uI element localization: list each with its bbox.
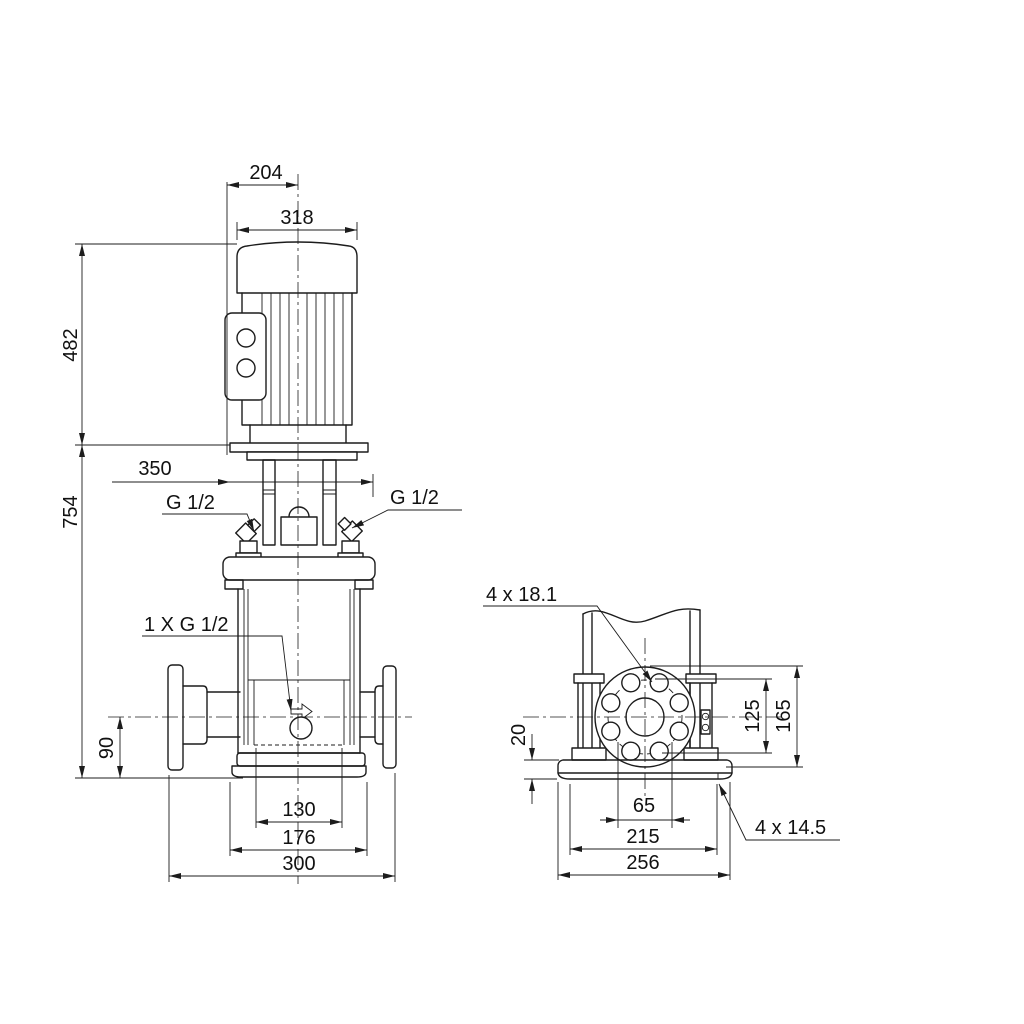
lantern-leg-right [323, 460, 336, 545]
front-view [108, 174, 412, 884]
leader-g12-right [352, 510, 462, 528]
dimension-labels: 204 318 482 754 350 G 1/2 G 1/2 1 X G 1/… [60, 162, 826, 875]
flange-bolt-left [240, 541, 257, 553]
pump-body [168, 557, 396, 777]
pump-dimension-drawing: 204 318 482 754 350 G 1/2 G 1/2 1 X G 1/… [0, 0, 1024, 1024]
motor-fins [262, 293, 343, 425]
dim-165: 165 [773, 699, 795, 732]
dim-204: 204 [249, 162, 282, 184]
fan-cover [237, 242, 357, 293]
label-g12-right: G 1/2 [390, 487, 439, 509]
dim-130: 130 [282, 799, 315, 821]
label-base-holes: 4 x 14.5 [755, 817, 826, 839]
flange-bolt-right [342, 541, 359, 553]
flange-shoulder-left [225, 580, 243, 589]
terminal-box [225, 313, 266, 400]
extension-lines [75, 182, 803, 882]
vent-plug-right [336, 515, 362, 541]
flange-shoulder-right [355, 580, 373, 589]
dim-20: 20 [508, 724, 530, 746]
shaft-dome [289, 507, 309, 517]
cable-gland-bottom [237, 359, 255, 377]
label-g12-left: G 1/2 [166, 492, 215, 514]
dim-176: 176 [282, 827, 315, 849]
dim-125: 125 [742, 699, 764, 732]
dim-65: 65 [633, 795, 655, 817]
dim-754: 754 [60, 495, 82, 528]
pump-top-flange [223, 557, 375, 580]
dim-350: 350 [138, 458, 171, 480]
dim-482: 482 [60, 328, 82, 361]
motor-flange-plate2 [247, 452, 357, 460]
pump-base-front [232, 753, 366, 777]
vent-plug-left [236, 517, 263, 544]
drain-plug [290, 717, 312, 739]
dim-300: 300 [282, 853, 315, 875]
dim-318: 318 [280, 207, 313, 229]
lantern [236, 460, 363, 558]
dim-215: 215 [626, 826, 659, 848]
leader-drain [142, 636, 291, 711]
coupling [281, 517, 317, 545]
lantern-leg-left [263, 460, 275, 545]
motor [225, 242, 368, 460]
dim-256: 256 [626, 852, 659, 874]
cable-gland-top [237, 329, 255, 347]
dim-90: 90 [96, 737, 118, 759]
coupling-guard-joints [263, 490, 336, 494]
drawing-canvas: 204 318 482 754 350 G 1/2 G 1/2 1 X G 1/… [0, 0, 1024, 1024]
label-drain-port: 1 X G 1/2 [144, 614, 229, 636]
motor-flange-plate [230, 443, 368, 452]
label-flange-holes: 4 x 18.1 [486, 584, 557, 606]
suction-flange [168, 665, 240, 770]
